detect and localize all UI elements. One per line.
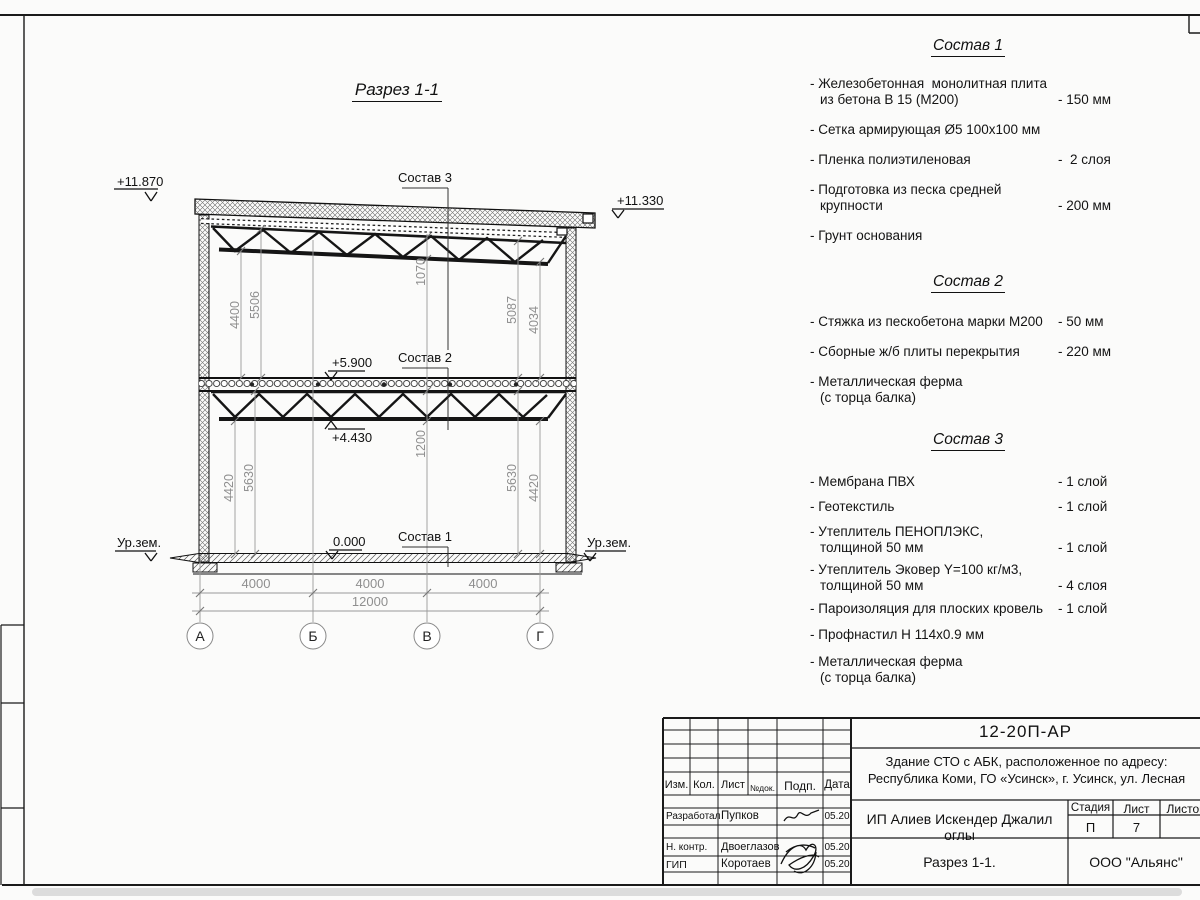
list-item: - Утеплитель ПЕНОПЛЭКС,толщиной 50 мм - … <box>810 524 1128 555</box>
col-header-izm: Изм. <box>663 779 690 791</box>
elevation-marks: +11.870 +11.330 +5.900 +4.430 0.000 Ур.з… <box>114 174 664 561</box>
row-date-1: 05.20 <box>823 811 851 822</box>
list-item: - Стяжка из пескобетона марки М200 - 50 … <box>810 314 1128 330</box>
col-header-kol: Кол. <box>690 779 718 791</box>
list-item: - Пароизоляция для плоских кровель - 1 с… <box>810 601 1128 617</box>
drawing-name: Разрез 1-1. <box>851 854 1068 870</box>
axis-bubbles: А Б В Г <box>187 623 553 649</box>
list-item: - Грунт основания <box>810 228 1128 244</box>
row-name-korotaev: Коротаев <box>721 858 777 870</box>
doc-number: 12-20П-АР <box>851 722 1200 742</box>
list-item: - Профнастил Н 114х0.9 мм <box>810 627 1128 643</box>
list-item: - Сборные ж/б плиты перекрытия - 220 мм <box>810 344 1128 360</box>
dim-4034: 4034 <box>527 306 541 334</box>
signature-razrabotal <box>784 810 819 821</box>
list-item: - Сетка армирующая Ø5 100х100 мм <box>810 122 1128 138</box>
elev-roof-right: +11.330 <box>617 193 663 208</box>
list-item: - Металлическая ферма(с торца балка) <box>810 374 1128 405</box>
dim-5630-left: 5630 <box>242 464 256 492</box>
section-title: Разрез 1-1 <box>322 80 472 100</box>
elev-roof-left: +11.870 <box>117 174 163 189</box>
row-date-3: 05.20 <box>823 859 851 870</box>
col-header-data: Дата <box>823 779 851 791</box>
row-role-nkontr: Н. контр. <box>666 842 718 853</box>
list-item: - Мембрана ПВХ - 1 слой <box>810 474 1128 490</box>
callout-sostav-3: Состав 3 <box>398 170 452 185</box>
list-item: - Утеплитель Эковер Y=100 кг/м3,толщиной… <box>810 562 1128 593</box>
floor-truss <box>211 392 566 419</box>
ground-level-right: Ур.зем. <box>587 535 631 550</box>
sheet-number: 7 <box>1113 820 1160 835</box>
col-header-ndok: №док. <box>748 783 777 793</box>
elev-truss: +4.430 <box>332 430 372 445</box>
signatures <box>781 810 819 873</box>
company-name: ООО "Альянс" <box>1068 854 1200 870</box>
col-header-list: Лист <box>718 779 748 791</box>
list-item: - Геотекстиль - 1 слой <box>810 499 1128 515</box>
row-role-gip: ГИП <box>666 859 718 871</box>
elev-floor: +5.900 <box>332 355 372 370</box>
ground-level-left: Ур.зем. <box>117 535 161 550</box>
dim-5506: 5506 <box>248 291 262 319</box>
dim-5630-right: 5630 <box>505 464 519 492</box>
foundation-left <box>193 563 217 572</box>
drawing-sheet: 4400 5506 1070 5087 4034 4420 5630 1200 … <box>0 0 1200 900</box>
foundation-right <box>556 563 582 572</box>
axis-label-v: В <box>422 628 431 644</box>
elev-zero: 0.000 <box>333 534 366 549</box>
list-item: - Пленка полиэтиленовая - 2 слоя <box>810 152 1128 168</box>
callout-sostav-2: Состав 2 <box>398 350 452 365</box>
dim-4400: 4400 <box>228 301 242 329</box>
axis-label-b: Б <box>308 628 317 644</box>
axis-label-a: А <box>195 628 205 644</box>
dim-span-3: 4000 <box>469 576 498 591</box>
row-date-2: 05.20 <box>823 842 851 853</box>
roof-end-cap <box>583 214 593 223</box>
sheets-label: Листов <box>1160 802 1200 816</box>
list-item: - Подготовка из песка среднейкрупности -… <box>810 182 1128 213</box>
list-item: - Металлическая ферма(с торца балка) <box>810 654 1128 685</box>
signature-nkontr-gip <box>781 844 819 873</box>
composition-2-title: Состав 2 <box>810 273 1126 291</box>
row-name-pupkov: Пупков <box>721 810 777 822</box>
dim-5087: 5087 <box>505 296 519 324</box>
building-section <box>170 199 596 574</box>
stage-value: П <box>1068 820 1113 835</box>
dim-1070: 1070 <box>414 258 428 286</box>
dim-1200: 1200 <box>414 430 428 458</box>
right-wall <box>566 228 576 562</box>
composition-3-title: Состав 3 <box>810 431 1126 449</box>
col-header-podp: Подп. <box>777 779 823 793</box>
object-line-1: Здание СТО с АБК, расположенное по адрес… <box>853 754 1200 769</box>
axis-label-g: Г <box>536 628 544 644</box>
dim-span-1: 4000 <box>242 576 271 591</box>
horizontal-scrollbar[interactable] <box>32 888 1182 896</box>
client-name: ИП Алиев Искендер Джалил оглы <box>851 811 1068 843</box>
corner-box <box>1189 15 1200 33</box>
row-name-dvoeglazov: Двоеглазов <box>721 841 777 853</box>
dim-span-2: 4000 <box>356 576 385 591</box>
sheet-label: Лист <box>1113 802 1160 816</box>
list-item: - Железобетонная монолитная плитаиз бето… <box>810 76 1128 107</box>
row-role-razrabotal: Разработал <box>666 811 718 822</box>
dim-4420-right: 4420 <box>527 474 541 502</box>
left-margin-boxes <box>1 625 24 885</box>
composition-1-title: Состав 1 <box>810 37 1126 55</box>
dim-total: 12000 <box>352 594 388 609</box>
ground-slab <box>170 554 596 575</box>
object-line-2: Республика Коми, ГО «Усинск», г. Усинск,… <box>853 771 1200 786</box>
stage-label: Стадия <box>1068 802 1113 814</box>
callout-sostav-1: Состав 1 <box>398 529 452 544</box>
dim-4420-left: 4420 <box>222 474 236 502</box>
